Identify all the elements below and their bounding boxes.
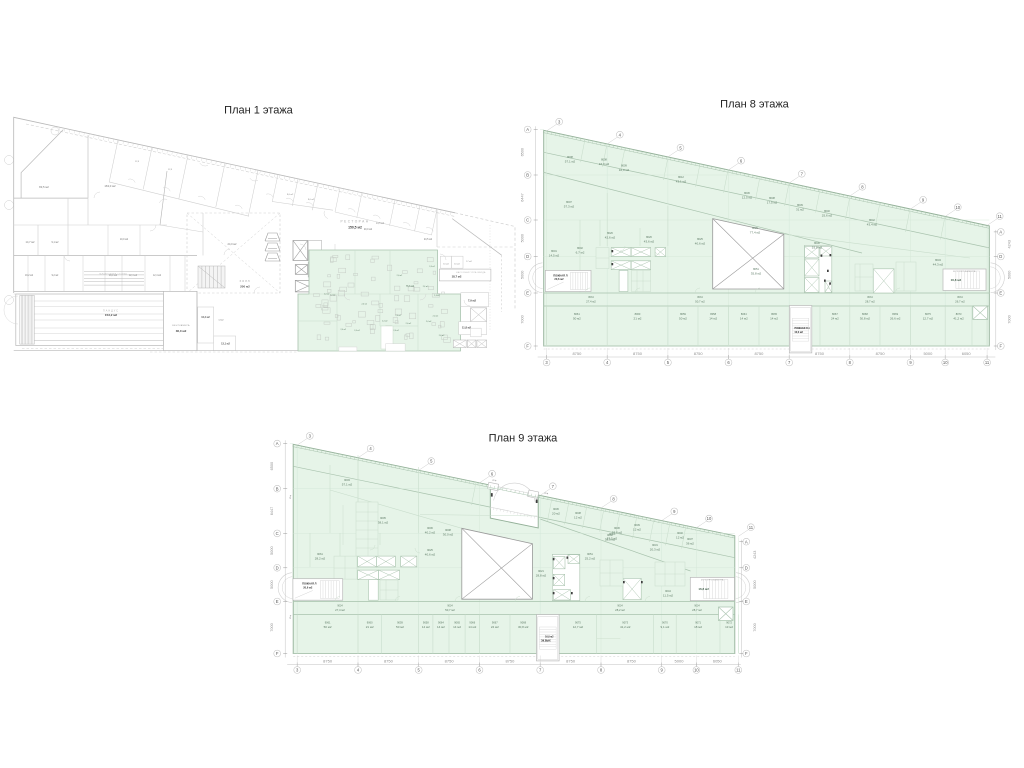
- svg-text:50 м2: 50 м2: [324, 625, 332, 629]
- svg-text:2,4 м2: 2,4 м2: [361, 303, 367, 305]
- svg-text:E: E: [999, 291, 1002, 296]
- svg-text:26,7 м2: 26,7 м2: [955, 300, 965, 304]
- svg-text:9070: 9070: [662, 621, 668, 625]
- svg-text:8750: 8750: [876, 351, 886, 356]
- svg-text:14 м2: 14 м2: [709, 317, 717, 321]
- svg-text:10 м2: 10 м2: [454, 264, 460, 266]
- svg-text:27,4 м2: 27,4 м2: [335, 608, 345, 612]
- svg-text:5000: 5000: [521, 271, 525, 279]
- svg-text:20,6 м2: 20,6 м2: [303, 586, 313, 590]
- svg-text:5000: 5000: [270, 546, 274, 554]
- svg-text:9071: 9071: [695, 621, 701, 625]
- svg-text:12,5 м2: 12,5 м2: [742, 196, 753, 200]
- svg-text:5000: 5000: [270, 580, 274, 588]
- svg-text:МУСОРОКАМЕРА: МУСОРОКАМЕРА: [701, 579, 724, 582]
- svg-text:7000: 7000: [753, 623, 757, 631]
- svg-text:2,4 м2: 2,4 м2: [434, 295, 440, 297]
- svg-text:8060: 8060: [635, 312, 641, 316]
- svg-text:9075: 9075: [575, 621, 581, 625]
- svg-text:8034: 8034: [935, 258, 941, 262]
- svg-text:28,2 м2: 28,2 м2: [315, 557, 326, 561]
- svg-text:40,2 м2: 40,2 м2: [425, 531, 436, 535]
- svg-text:50 м2: 50 м2: [679, 317, 687, 321]
- svg-text:8039: 8039: [797, 203, 803, 207]
- svg-text:B: B: [276, 486, 279, 491]
- svg-text:F: F: [526, 344, 529, 349]
- svg-text:28,7 м2: 28,7 м2: [692, 608, 702, 612]
- svg-text:F: F: [1000, 344, 1003, 349]
- svg-text:50,7 м2: 50,7 м2: [445, 608, 455, 612]
- svg-text:10: 10: [707, 516, 712, 521]
- svg-text:8750: 8750: [754, 351, 764, 356]
- svg-text:14 м2: 14 м2: [453, 625, 461, 629]
- svg-text:9036: 9036: [553, 507, 559, 511]
- svg-text:30,0 м2: 30,0 м2: [443, 533, 454, 537]
- svg-text:ПОЖНАЯ Л.1: ПОЖНАЯ Л.1: [794, 327, 810, 330]
- svg-text:31 м2: 31 м2: [796, 208, 804, 212]
- svg-text:9040: 9040: [677, 531, 683, 535]
- svg-text:77,4 м2: 77,4 м2: [750, 231, 761, 235]
- svg-text:9005: 9005: [380, 516, 386, 520]
- svg-text:9006: 9006: [427, 526, 433, 530]
- svg-text:8750: 8750: [633, 351, 643, 356]
- svg-text:2,4 м2: 2,4 м2: [354, 330, 360, 332]
- svg-text:МУСОРОКАМЕРА: МУСОРОКАМЕРА: [953, 270, 976, 273]
- svg-text:44,3 м2: 44,3 м2: [933, 263, 944, 267]
- svg-text:18,7 м2: 18,7 м2: [452, 275, 462, 279]
- svg-text:10: 10: [955, 205, 960, 210]
- svg-text:D: D: [526, 254, 529, 259]
- svg-text:43,6 м2: 43,6 м2: [644, 240, 655, 244]
- svg-text:41,2 м2: 41,2 м2: [953, 317, 964, 321]
- svg-text:РЕСТОРАН: РЕСТОРАН: [340, 220, 369, 224]
- svg-text:28,7 м2: 28,7 м2: [865, 300, 875, 304]
- svg-text:2,4 м2: 2,4 м2: [433, 315, 439, 317]
- svg-text:4243: 4243: [753, 551, 757, 559]
- svg-text:20,6 м2: 20,6 м2: [554, 277, 564, 281]
- svg-text:24 м2: 24 м2: [831, 317, 839, 321]
- svg-text:9031: 9031: [652, 543, 658, 547]
- svg-text:57,1 м2: 57,1 м2: [565, 160, 576, 164]
- svg-text:5000: 5000: [675, 659, 685, 664]
- svg-text:9060: 9060: [367, 621, 373, 625]
- svg-text:40,6 м2: 40,6 м2: [425, 553, 436, 557]
- svg-text:8058: 8058: [710, 312, 716, 316]
- svg-text:53,8 м2: 53,8 м2: [812, 246, 823, 250]
- svg-text:A: A: [999, 230, 1002, 235]
- svg-text:8051: 8051: [753, 267, 759, 271]
- svg-text:6500: 6500: [521, 148, 525, 156]
- svg-text:9,1 м2: 9,1 м2: [661, 625, 670, 629]
- svg-text:8750: 8750: [627, 659, 637, 664]
- svg-text:53,8 м2: 53,8 м2: [612, 531, 623, 535]
- svg-text:24,0 м2: 24,0 м2: [228, 242, 238, 246]
- svg-text:12,7 м2: 12,7 м2: [573, 625, 584, 629]
- svg-text:43,1 м2: 43,1 м2: [676, 180, 687, 184]
- svg-text:200 м2: 200 м2: [240, 285, 250, 289]
- svg-text:8029: 8029: [752, 226, 758, 230]
- svg-text:83,5 м2: 83,5 м2: [39, 185, 49, 189]
- svg-text:УГф: УГф: [289, 495, 292, 499]
- svg-text:ПОЖНАЯ Л: ПОЖНАЯ Л: [302, 582, 317, 586]
- svg-text:12 м2: 12 м2: [676, 536, 684, 540]
- svg-text:12,4 м2: 12,4 м2: [129, 275, 138, 277]
- svg-text:9064: 9064: [438, 621, 444, 625]
- svg-text:7,9 м2: 7,9 м2: [468, 298, 476, 302]
- svg-text:10: 10: [943, 360, 948, 365]
- svg-text:F: F: [745, 651, 748, 656]
- svg-text:9,6 м2: 9,6 м2: [287, 194, 294, 196]
- svg-text:21 м2: 21 м2: [634, 317, 642, 321]
- svg-text:8075: 8075: [925, 312, 931, 316]
- svg-text:9073: 9073: [622, 621, 628, 625]
- svg-text:9066: 9066: [469, 621, 475, 625]
- svg-text:11,8 м2: 11,8 м2: [462, 326, 472, 330]
- svg-text:8750: 8750: [694, 351, 704, 356]
- svg-text:76,6 м2: 76,6 м2: [406, 285, 415, 288]
- svg-text:36,0 м2: 36,0 м2: [176, 329, 187, 333]
- svg-text:14,5 м2: 14,5 м2: [376, 223, 385, 225]
- svg-text:План 8 этажа: План 8 этажа: [720, 99, 790, 111]
- svg-text:2,4 м2: 2,4 м2: [406, 323, 412, 325]
- svg-text:8750: 8750: [445, 659, 455, 664]
- svg-text:153,2 м2: 153,2 м2: [105, 313, 118, 317]
- svg-text:9,2 м2: 9,2 м2: [52, 275, 59, 277]
- svg-text:7000: 7000: [521, 315, 525, 323]
- svg-text:8750: 8750: [323, 659, 333, 664]
- svg-text:50 м2: 50 м2: [573, 317, 581, 321]
- svg-text:9,1 м2: 9,1 м2: [52, 241, 60, 244]
- svg-text:12м2: 12м2: [218, 320, 224, 322]
- svg-text:7000: 7000: [1007, 315, 1011, 323]
- svg-text:30,8 м2: 30,8 м2: [860, 317, 871, 321]
- svg-text:11: 11: [998, 214, 1003, 219]
- svg-text:9067: 9067: [492, 621, 498, 625]
- svg-text:57,1 м2: 57,1 м2: [342, 483, 353, 487]
- svg-text:8073: 8073: [956, 312, 962, 316]
- svg-text:9003: 9003: [344, 478, 350, 482]
- svg-text:13 м2: 13 м2: [725, 625, 733, 629]
- svg-text:6050: 6050: [713, 659, 723, 664]
- svg-text:20 м2: 20 м2: [552, 512, 560, 516]
- svg-text:16,8 м2: 16,8 м2: [951, 278, 962, 282]
- svg-text:16,9 м2: 16,9 м2: [619, 168, 630, 172]
- svg-text:B: B: [526, 173, 529, 178]
- svg-text:9039: 9039: [634, 523, 640, 527]
- svg-text:8030: 8030: [814, 241, 820, 245]
- svg-text:8012: 8012: [678, 175, 684, 179]
- svg-text:150,5 м2: 150,5 м2: [348, 226, 362, 230]
- svg-text:2,4 м2: 2,4 м2: [429, 266, 435, 268]
- svg-text:8059: 8059: [680, 312, 686, 316]
- svg-text:8750: 8750: [815, 351, 825, 356]
- svg-text:14,5 м2: 14,5 м2: [549, 254, 560, 258]
- svg-text:35,8 м2: 35,8 м2: [751, 272, 762, 276]
- svg-text:8064: 8064: [741, 312, 747, 316]
- svg-text:12 м2: 12 м2: [633, 528, 641, 532]
- svg-text:D: D: [276, 565, 279, 570]
- svg-text:50 м2: 50 м2: [396, 625, 404, 629]
- svg-text:10,0 м2: 10,0 м2: [120, 238, 129, 241]
- svg-text:2,4 м2: 2,4 м2: [341, 329, 347, 331]
- svg-text:2,4 м2: 2,4 м2: [382, 321, 388, 323]
- svg-text:38,3 м2: 38,3 м2: [605, 538, 616, 542]
- svg-text:8750: 8750: [566, 659, 576, 664]
- svg-text:5000: 5000: [923, 351, 933, 356]
- svg-text:11: 11: [749, 525, 754, 530]
- svg-text:9,0 м2: 9,0 м2: [308, 199, 315, 201]
- svg-text:6500: 6500: [270, 462, 274, 470]
- svg-text:9025: 9025: [427, 548, 433, 552]
- svg-text:10,0 м2: 10,0 м2: [794, 331, 803, 334]
- svg-text:9037: 9037: [687, 537, 693, 541]
- svg-text:5000: 5000: [1007, 271, 1011, 279]
- svg-text:C: C: [526, 218, 529, 223]
- svg-text:2,4 м2: 2,4 м2: [439, 335, 445, 337]
- svg-text:8026: 8026: [607, 231, 613, 235]
- svg-text:9065: 9065: [454, 621, 460, 625]
- svg-text:19,2 м2: 19,2 м2: [25, 275, 34, 277]
- svg-text:ГАРДЕРОБНАЯ СТОЙКА: ГАРДЕРОБНАЯ СТОЙКА: [99, 273, 127, 276]
- svg-text:A: A: [276, 441, 279, 446]
- svg-text:24 м2: 24 м2: [491, 625, 499, 629]
- svg-text:14 м2: 14 м2: [770, 317, 778, 321]
- svg-text:14 м2: 14 м2: [422, 625, 430, 629]
- svg-text:9008: 9008: [445, 528, 451, 532]
- svg-text:A: A: [526, 127, 529, 132]
- svg-text:8065: 8065: [771, 312, 777, 316]
- svg-text:8750: 8750: [505, 659, 515, 664]
- svg-text:38,1 м2: 38,1 м2: [378, 521, 389, 525]
- svg-text:8750: 8750: [572, 351, 582, 356]
- svg-text:8068: 8068: [862, 312, 868, 316]
- svg-text:17 м2: 17 м2: [466, 261, 472, 263]
- svg-text:План 9 этажа: План 9 этажа: [489, 433, 559, 445]
- svg-text:25,2 м2: 25,2 м2: [585, 557, 596, 561]
- svg-text:2,4 м2: 2,4 м2: [426, 321, 432, 323]
- svg-text:21 м2: 21 м2: [366, 625, 374, 629]
- svg-text:18 м2: 18 м2: [694, 625, 702, 629]
- svg-text:8038: 8038: [769, 196, 775, 200]
- svg-text:14 м2: 14 м2: [437, 625, 445, 629]
- svg-text:A: A: [745, 539, 748, 544]
- svg-text:10: 10: [694, 668, 699, 673]
- svg-text:26,6 м2: 26,6 м2: [890, 317, 901, 321]
- svg-text:36 м2: 36 м2: [686, 542, 694, 546]
- svg-text:11: 11: [736, 668, 741, 673]
- svg-text:6447: 6447: [521, 193, 525, 201]
- svg-text:9021: 9021: [538, 569, 544, 573]
- svg-text:20,3 м2: 20,3 м2: [650, 548, 661, 552]
- svg-text:8025: 8025: [697, 237, 703, 241]
- svg-text:C: C: [276, 531, 279, 536]
- svg-text:14 м2: 14 м2: [468, 625, 476, 629]
- svg-text:9058: 9058: [423, 621, 429, 625]
- svg-text:8009: 8009: [621, 164, 627, 168]
- svg-text:11: 11: [985, 360, 990, 365]
- svg-text:8007: 8007: [566, 200, 572, 204]
- svg-text:28,2 м2: 28,2 м2: [615, 608, 625, 612]
- svg-text:9051: 9051: [587, 552, 593, 556]
- svg-text:ВЕНТКАМЕРА: ВЕНТКАМЕРА: [172, 324, 190, 327]
- svg-text:16,2 м2: 16,2 м2: [201, 316, 210, 319]
- svg-text:9068: 9068: [520, 621, 526, 625]
- svg-text:6447: 6447: [270, 507, 274, 515]
- svg-text:28,8 м2: 28,8 м2: [536, 574, 547, 578]
- svg-text:9038: 9038: [575, 511, 581, 515]
- svg-text:163,0 м2: 163,0 м2: [104, 184, 116, 188]
- svg-text:План 1 этажа: План 1 этажа: [224, 105, 294, 117]
- svg-text:8061: 8061: [574, 312, 580, 316]
- svg-text:50,7 м2: 50,7 м2: [695, 300, 705, 304]
- svg-text:8040: 8040: [824, 209, 830, 213]
- svg-text:25,6 м2: 25,6 м2: [822, 214, 833, 218]
- svg-text:10 м2: 10 м2: [443, 264, 449, 266]
- svg-text:ПОЖНАЯ Л: ПОЖНАЯ Л: [553, 273, 568, 277]
- svg-text:8026: 8026: [646, 235, 652, 239]
- svg-text:14 м2: 14 м2: [740, 317, 748, 321]
- svg-text:УГф: УГф: [492, 479, 496, 482]
- svg-text:9059: 9059: [397, 621, 403, 625]
- svg-text:ЭК.ВЫХ: ЭК.ВЫХ: [541, 640, 551, 643]
- svg-text:30,8 м2: 30,8 м2: [518, 625, 529, 629]
- svg-text:9030: 9030: [614, 526, 620, 530]
- svg-text:8042: 8042: [869, 218, 875, 222]
- svg-text:8069: 8069: [892, 312, 898, 316]
- svg-text:5000: 5000: [753, 580, 757, 588]
- svg-text:24,5 м2: 24,5 м2: [424, 238, 433, 241]
- svg-text:D: D: [999, 254, 1002, 259]
- svg-text:17,5 м2: 17,5 м2: [767, 201, 778, 205]
- svg-text:16,9 м2: 16,9 м2: [599, 162, 610, 166]
- svg-text:6050: 6050: [962, 351, 972, 356]
- svg-text:9044: 9044: [665, 589, 671, 593]
- svg-text:9061: 9061: [325, 621, 331, 625]
- svg-text:6,7 м2: 6,7 м2: [576, 251, 585, 255]
- svg-text:16,8 м2: 16,8 м2: [698, 587, 709, 591]
- svg-text:2,4 м2: 2,4 м2: [330, 294, 336, 296]
- svg-text:40,6 м2: 40,6 м2: [695, 242, 706, 246]
- svg-text:ХОЛЛ: ХОЛЛ: [239, 279, 250, 283]
- svg-text:E: E: [745, 599, 748, 604]
- svg-text:13,1 м2: 13,1 м2: [221, 343, 230, 346]
- svg-text:7000: 7000: [270, 623, 274, 631]
- svg-text:41,2 м2: 41,2 м2: [620, 625, 631, 629]
- svg-text:14,7 м2: 14,7 м2: [26, 240, 36, 244]
- svg-text:42,6 м2: 42,6 м2: [605, 236, 616, 240]
- svg-text:12,4 м2: 12,4 м2: [153, 275, 162, 277]
- svg-text:2,4 м2: 2,4 м2: [324, 293, 330, 295]
- svg-text:4243: 4243: [1007, 240, 1011, 248]
- svg-text:9072: 9072: [726, 621, 732, 625]
- svg-text:8001: 8001: [551, 249, 557, 253]
- svg-text:2,4 м2: 2,4 м2: [423, 286, 429, 288]
- svg-text:20,0 м2: 20,0 м2: [364, 228, 373, 231]
- svg-text:2,4 м2: 2,4 м2: [397, 275, 403, 277]
- svg-text:43,4 м2: 43,4 м2: [867, 223, 878, 227]
- svg-text:8750: 8750: [384, 659, 394, 664]
- svg-text:УГф: УГф: [289, 615, 292, 619]
- svg-text:D: D: [745, 565, 748, 570]
- svg-text:8008: 8008: [567, 155, 573, 159]
- svg-text:9061: 9061: [317, 552, 323, 556]
- svg-text:12,7 м2: 12,7 м2: [923, 317, 934, 321]
- svg-text:16,0 м2: 16,0 м2: [545, 636, 554, 639]
- svg-text:5000: 5000: [521, 234, 525, 242]
- svg-text:8036: 8036: [744, 191, 750, 195]
- svg-text:11,5 м2: 11,5 м2: [663, 594, 674, 598]
- svg-text:F: F: [276, 651, 279, 656]
- svg-text:57,3 м2: 57,3 м2: [564, 205, 575, 209]
- svg-text:8067: 8067: [832, 312, 838, 316]
- svg-text:27,4 м2: 27,4 м2: [586, 300, 596, 304]
- svg-text:2,4 м2: 2,4 м2: [395, 315, 401, 317]
- svg-text:2,4 м2: 2,4 м2: [393, 330, 399, 332]
- svg-text:E: E: [526, 291, 529, 296]
- svg-text:E: E: [276, 599, 279, 604]
- svg-text:12 м2: 12 м2: [574, 516, 582, 520]
- svg-text:8002: 8002: [577, 246, 583, 250]
- svg-text:8008: 8008: [601, 158, 607, 162]
